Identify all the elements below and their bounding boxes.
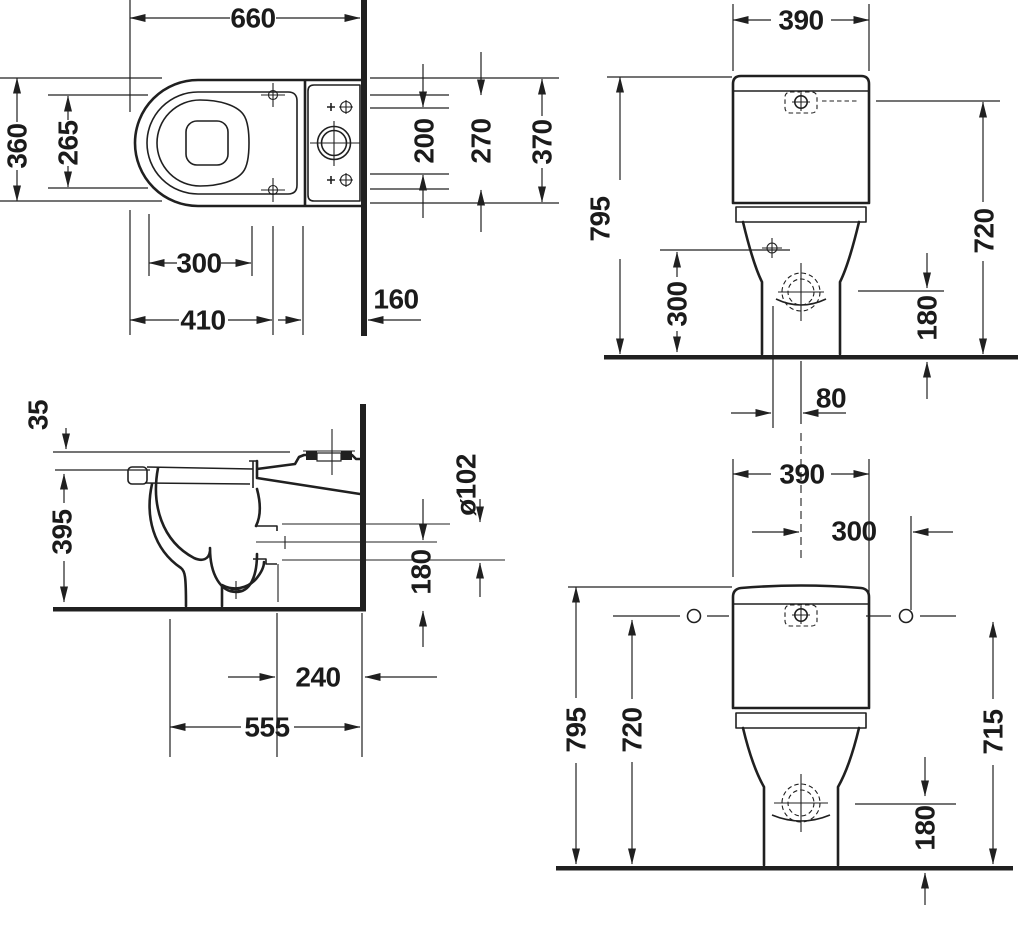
dim-lower-hole-height-left: 720	[617, 620, 648, 864]
dim-front-outlet-height: 180	[912, 253, 943, 399]
dim-side-rim-height: 395	[47, 474, 78, 602]
dim-plan-total-depth: 660	[130, 3, 360, 34]
outlet-spigot	[253, 526, 277, 564]
dim-label: 390	[778, 5, 823, 36]
floor-line	[604, 355, 1018, 360]
flush-spot	[186, 121, 228, 165]
dim-front-overall-height: 795	[585, 77, 621, 354]
bowl-inner-and-sump	[156, 468, 257, 592]
technical-drawing-page: 660 360 265 300 410 160	[0, 0, 1024, 930]
dim-side-outlet-to-wall: 240	[228, 662, 437, 693]
dim-plan-seat-holes: 265	[53, 96, 84, 187]
dim-side-outlet-center-height: 180	[406, 499, 437, 647]
floor-line	[556, 866, 1013, 871]
dim-label: 35	[23, 400, 54, 430]
dim-side-depth-to-wall: 555	[170, 712, 360, 743]
seat-bolt	[306, 451, 317, 460]
dim-lower-tank-width: 390	[733, 459, 869, 490]
deck-profile	[257, 455, 360, 494]
dim-label: 80	[816, 383, 846, 414]
floor-line	[53, 607, 366, 612]
coupling-band	[736, 713, 866, 728]
dim-label: 200	[409, 118, 440, 163]
dim-front-tank-top-height: 720	[969, 102, 1000, 354]
supply-hole-icon	[762, 238, 782, 258]
dim-lower-center-to-hole: 300	[752, 516, 953, 547]
bowl-opening	[157, 100, 249, 186]
dim-label: 795	[585, 196, 616, 241]
wall-section	[361, 0, 367, 336]
fixing-hole-icon	[261, 178, 285, 202]
wall-fixing-hole-icon	[900, 610, 913, 623]
coupling-band	[736, 207, 866, 222]
dim-label: 300	[831, 516, 876, 547]
dim-plan-overall-width: 360	[2, 78, 33, 201]
dim-label: 360	[2, 123, 33, 168]
flush-button-icon	[792, 93, 810, 111]
outlet-icon	[776, 263, 826, 321]
seat-profile	[145, 461, 257, 488]
extension-lines	[53, 452, 362, 757]
outlet-icon	[772, 774, 830, 832]
dim-front-supply-height: 300	[662, 252, 693, 352]
dim-front-tank-width: 390	[733, 5, 869, 36]
dim-plan-tank-200: 200	[409, 64, 440, 218]
plan-view: 660 360 265 300 410 160	[0, 0, 559, 336]
dim-label: 795	[561, 707, 592, 752]
dim-label: 240	[295, 662, 340, 693]
dim-label: 720	[969, 208, 1000, 253]
dim-label: 410	[180, 305, 225, 336]
dim-label: 300	[662, 281, 693, 326]
dim-label: 265	[53, 120, 84, 165]
extension-lines	[0, 0, 559, 335]
dim-plan-tank-370: 370	[527, 79, 558, 202]
bowl-foot	[222, 562, 264, 606]
bowl-front-outer	[150, 484, 186, 606]
seat-bolt	[341, 451, 352, 460]
dim-label: 390	[779, 459, 824, 490]
dim-label: 180	[910, 805, 941, 850]
dim-label: 180	[406, 549, 437, 594]
toilet-dimension-drawing: 660 360 265 300 410 160	[0, 0, 1024, 930]
dim-plan-behind-wall: 160	[368, 284, 421, 321]
bolt-plate	[317, 453, 341, 461]
dim-plan-front-to-holes: 410	[130, 305, 301, 336]
seat-outline	[147, 92, 297, 194]
dim-lower-hole-height-right: 715	[978, 622, 1009, 864]
dim-label: 720	[617, 707, 648, 752]
extension-lines	[607, 4, 1000, 428]
dim-lower-overall-height: 795	[561, 587, 592, 864]
dim-front-outlet-offset: 80	[731, 383, 846, 414]
front-view-upper: 390 795 720 300 180 80	[585, 4, 1019, 428]
dim-label: 370	[527, 119, 558, 164]
dim-label: 660	[230, 3, 275, 34]
side-section-view: 35 395 ø102 180 240 555	[23, 400, 506, 757]
flush-button-icon	[792, 606, 810, 624]
dim-label: 555	[244, 712, 289, 743]
dim-label: 270	[466, 118, 497, 163]
fixing-hole-icon	[261, 83, 285, 107]
dim-label: 395	[47, 509, 78, 554]
wall-section	[360, 404, 366, 610]
wall-fixing-hole-icon	[688, 610, 701, 623]
dim-lower-outlet-height: 180	[910, 757, 941, 905]
dim-label: 300	[176, 248, 221, 279]
outlet-lines	[256, 524, 505, 602]
bowl-back-wall	[256, 489, 260, 526]
dim-label: 160	[373, 284, 418, 315]
front-view-lower: 390 300 795 720 715 180	[556, 433, 1013, 905]
flush-valve-icon	[310, 121, 360, 166]
dim-side-outlet-diameter: ø102	[451, 454, 482, 597]
dim-plan-tank-270: 270	[466, 52, 497, 232]
dim-label: 180	[912, 295, 943, 340]
dim-side-seat-thickness: 35	[23, 400, 67, 449]
dim-plan-hole-spacing: 300	[149, 248, 251, 279]
dim-label: ø102	[451, 454, 482, 516]
sump-mark	[227, 581, 245, 599]
dim-label: 715	[978, 709, 1009, 754]
